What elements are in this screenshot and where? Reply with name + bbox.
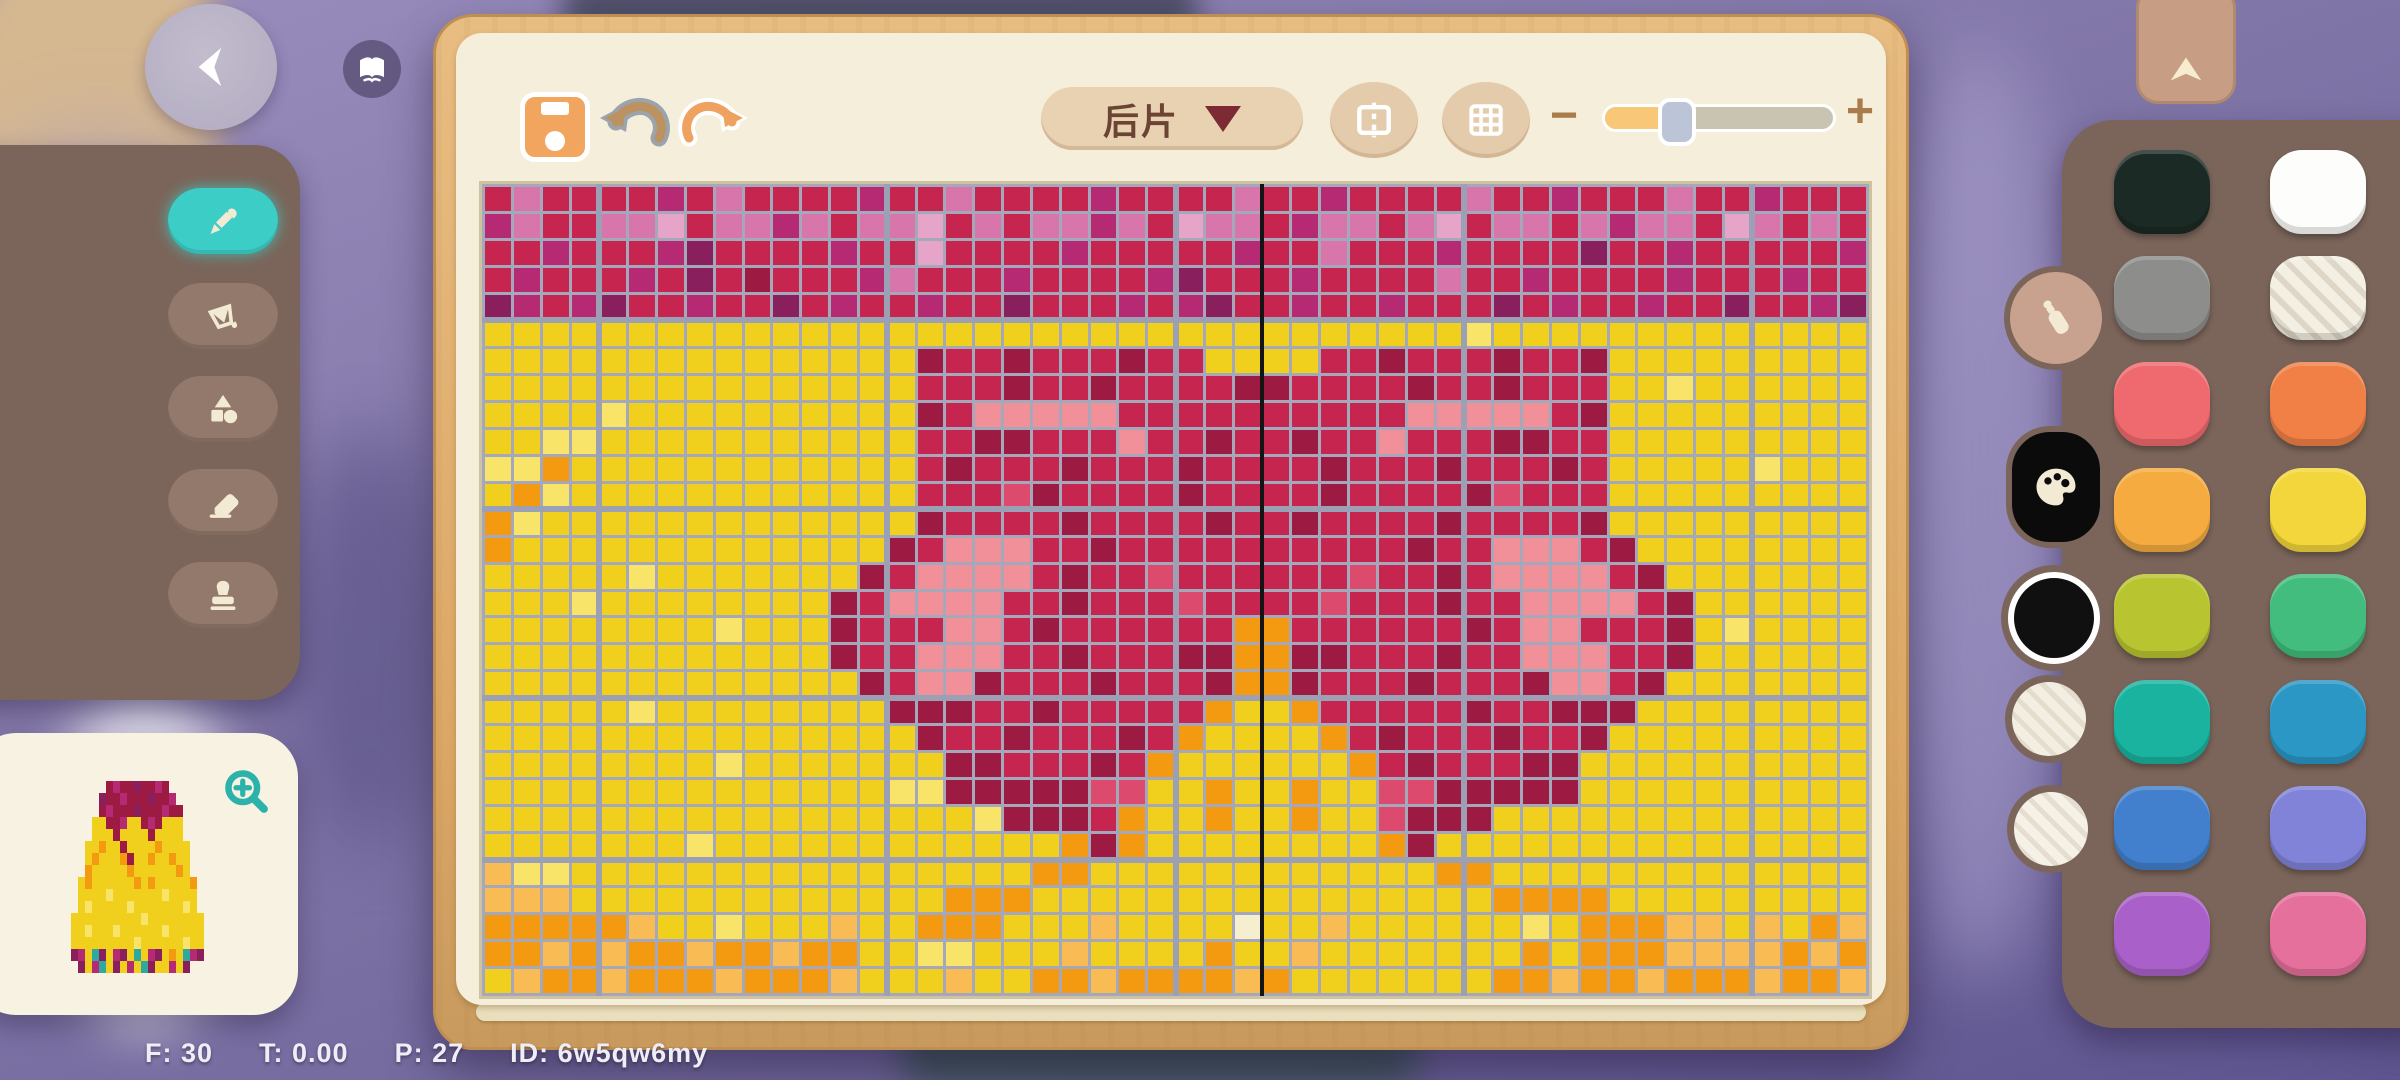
pixel-cell[interactable] [860,457,886,481]
pixel-cell[interactable] [745,187,771,211]
pixel-cell[interactable] [946,807,972,831]
pixel-cell[interactable] [860,969,886,993]
pixel-cell[interactable] [1148,969,1174,993]
pixel-cell[interactable] [1783,511,1809,535]
pixel-cell[interactable] [1667,565,1693,589]
pixel-cell[interactable] [600,430,626,454]
pixel-cell[interactable] [1235,214,1261,238]
pixel-cell[interactable] [745,538,771,562]
pixel-cell[interactable] [1754,942,1780,966]
pixel-cell[interactable] [1321,565,1347,589]
color-swatch-orange[interactable] [2270,362,2366,446]
pixel-cell[interactable] [1292,699,1318,723]
pixel-cell[interactable] [1667,726,1693,750]
pixel-cell[interactable] [687,807,713,831]
pixel-cell[interactable] [1840,322,1866,346]
pixel-cell[interactable] [1379,942,1405,966]
pixel-cell[interactable] [572,834,598,858]
color-swatch-purple[interactable] [2114,892,2210,976]
pixel-cell[interactable] [1783,241,1809,265]
pixel-cell[interactable] [658,942,684,966]
pixel-cell[interactable] [1696,807,1722,831]
pixel-cell[interactable] [1494,780,1520,804]
pixel-cell[interactable] [1408,457,1434,481]
manual-book-button[interactable] [343,40,401,98]
pixel-cell[interactable] [1754,672,1780,696]
pixel-cell[interactable] [1033,942,1059,966]
pixel-cell[interactable] [687,753,713,777]
pixel-cell[interactable] [860,699,886,723]
pixel-cell[interactable] [1667,430,1693,454]
pixel-cell[interactable] [1754,538,1780,562]
pixel-cell[interactable] [1177,780,1203,804]
pixel-cell[interactable] [1408,268,1434,292]
pixel-cell[interactable] [1206,645,1232,669]
pixel-cell[interactable] [1696,753,1722,777]
pixel-cell[interactable] [1552,888,1578,912]
pixel-cell[interactable] [1033,753,1059,777]
pixel-cell[interactable] [1264,349,1290,373]
pixel-cell[interactable] [1350,268,1376,292]
pixel-cell[interactable] [802,538,828,562]
pixel-cell[interactable] [773,214,799,238]
pixel-cell[interactable] [1264,511,1290,535]
pixel-cell[interactable] [1292,214,1318,238]
pixel-cell[interactable] [572,592,598,616]
pixel-cell[interactable] [1754,592,1780,616]
pixel-cell[interactable] [860,322,886,346]
pixel-cell[interactable] [1264,187,1290,211]
pixel-cell[interactable] [1292,969,1318,993]
pixel-cell[interactable] [514,241,540,265]
pixel-cell[interactable] [1408,511,1434,535]
pixel-cell[interactable] [773,915,799,939]
pixel-cell[interactable] [1494,268,1520,292]
pixel-cell[interactable] [946,511,972,535]
pixel-cell[interactable] [1148,699,1174,723]
color-swatch-green[interactable] [2270,574,2366,658]
pixel-cell[interactable] [1062,672,1088,696]
pixel-cell[interactable] [1408,349,1434,373]
pixel-cell[interactable] [1581,322,1607,346]
pixel-cell[interactable] [773,834,799,858]
pixel-cell[interactable] [1581,241,1607,265]
pixel-cell[interactable] [543,511,569,535]
pixel-cell[interactable] [975,349,1001,373]
pixel-cell[interactable] [687,861,713,885]
pixel-cell[interactable] [485,403,511,427]
pixel-cell[interactable] [831,969,857,993]
pixel-canvas[interactable] [482,184,1869,996]
pixel-cell[interactable] [975,726,1001,750]
pixel-cell[interactable] [946,592,972,616]
pixel-cell[interactable] [975,969,1001,993]
pixel-cell[interactable] [1091,780,1117,804]
pixel-cell[interactable] [1321,376,1347,400]
pixel-cell[interactable] [716,861,742,885]
pixel-cell[interactable] [1292,888,1318,912]
pixel-cell[interactable] [773,780,799,804]
pixel-cell[interactable] [1379,376,1405,400]
pixel-cell[interactable] [1465,726,1491,750]
pixel-cell[interactable] [629,511,655,535]
pixel-cell[interactable] [831,268,857,292]
pixel-cell[interactable] [975,403,1001,427]
pixel-cell[interactable] [485,457,511,481]
pixel-cell[interactable] [514,942,540,966]
pixel-cell[interactable] [1235,241,1261,265]
pixel-cell[interactable] [975,618,1001,642]
pixel-cell[interactable] [1177,592,1203,616]
pixel-cell[interactable] [1638,376,1664,400]
pixel-cell[interactable] [658,457,684,481]
pixel-cell[interactable] [1119,780,1145,804]
pixel-cell[interactable] [946,753,972,777]
pixel-cell[interactable] [1667,187,1693,211]
pixel-cell[interactable] [1754,322,1780,346]
pixel-cell[interactable] [1235,645,1261,669]
pixel-cell[interactable] [1783,349,1809,373]
pixel-cell[interactable] [975,322,1001,346]
pixel-cell[interactable] [918,942,944,966]
pixel-cell[interactable] [1610,241,1636,265]
pixel-cell[interactable] [687,699,713,723]
pixel-cell[interactable] [1552,807,1578,831]
pixel-cell[interactable] [1292,403,1318,427]
pixel-cell[interactable] [1062,834,1088,858]
pixel-cell[interactable] [1667,969,1693,993]
pixel-cell[interactable] [860,187,886,211]
pixel-cell[interactable] [1610,753,1636,777]
pixel-cell[interactable] [600,511,626,535]
pixel-cell[interactable] [1264,457,1290,481]
pixel-cell[interactable] [1148,511,1174,535]
pixel-cell[interactable] [745,295,771,319]
pixel-cell[interactable] [1811,565,1837,589]
pixel-cell[interactable] [831,241,857,265]
pixel-cell[interactable] [658,753,684,777]
tool-button-eraser[interactable] [168,469,278,535]
pixel-cell[interactable] [1437,457,1463,481]
pixel-cell[interactable] [1235,888,1261,912]
pixel-cell[interactable] [658,672,684,696]
pixel-cell[interactable] [889,969,915,993]
pixel-cell[interactable] [716,430,742,454]
pixel-cell[interactable] [975,672,1001,696]
pixel-cell[interactable] [514,565,540,589]
pixel-cell[interactable] [1206,861,1232,885]
pixel-cell[interactable] [1783,592,1809,616]
pixel-cell[interactable] [1754,349,1780,373]
pixel-cell[interactable] [600,915,626,939]
pixel-cell[interactable] [1610,780,1636,804]
pixel-cell[interactable] [860,915,886,939]
pixel-cell[interactable] [600,861,626,885]
pixel-cell[interactable] [1321,241,1347,265]
pixel-cell[interactable] [1437,672,1463,696]
pixel-cell[interactable] [1494,565,1520,589]
pixel-cell[interactable] [1754,645,1780,669]
pixel-cell[interactable] [1177,861,1203,885]
pixel-cell[interactable] [1465,645,1491,669]
pixel-cell[interactable] [1610,295,1636,319]
pixel-cell[interactable] [1811,187,1837,211]
pixel-cell[interactable] [1062,214,1088,238]
pixel-cell[interactable] [1177,457,1203,481]
pixel-cell[interactable] [1696,888,1722,912]
pixel-cell[interactable] [1811,969,1837,993]
pixel-cell[interactable] [1206,403,1232,427]
pixel-cell[interactable] [1783,322,1809,346]
pixel-cell[interactable] [1033,376,1059,400]
pixel-cell[interactable] [1437,834,1463,858]
pixel-cell[interactable] [629,214,655,238]
pixel-cell[interactable] [572,511,598,535]
pixel-cell[interactable] [1840,753,1866,777]
pixel-cell[interactable] [1206,484,1232,508]
pixel-cell[interactable] [1292,322,1318,346]
pixel-cell[interactable] [773,592,799,616]
pixel-cell[interactable] [1148,268,1174,292]
pixel-cell[interactable] [1552,457,1578,481]
pixel-cell[interactable] [831,349,857,373]
pixel-cell[interactable] [1004,430,1030,454]
pixel-cell[interactable] [1581,376,1607,400]
pixel-cell[interactable] [1091,618,1117,642]
pixel-cell[interactable] [1437,753,1463,777]
pixel-cell[interactable] [1379,511,1405,535]
pixel-cell[interactable] [1177,834,1203,858]
pixel-cell[interactable] [1321,645,1347,669]
color-swatch-teal[interactable] [2114,680,2210,764]
pixel-cell[interactable] [1783,672,1809,696]
pixel-cell[interactable] [1811,241,1837,265]
pixel-cell[interactable] [946,187,972,211]
pixel-cell[interactable] [629,834,655,858]
pixel-cell[interactable] [1379,403,1405,427]
mirror-symmetry-button[interactable] [1330,82,1418,158]
pixel-cell[interactable] [1581,834,1607,858]
pixel-cell[interactable] [1119,969,1145,993]
pixel-cell[interactable] [946,834,972,858]
pixel-cell[interactable] [831,807,857,831]
pixel-cell[interactable] [687,888,713,912]
pixel-cell[interactable] [918,969,944,993]
pixel-cell[interactable] [1292,592,1318,616]
pixel-cell[interactable] [1206,834,1232,858]
pixel-cell[interactable] [1235,565,1261,589]
pixel-cell[interactable] [1783,538,1809,562]
pixel-cell[interactable] [1437,187,1463,211]
pixel-cell[interactable] [1350,592,1376,616]
pixel-cell[interactable] [1350,430,1376,454]
pixel-cell[interactable] [1523,699,1549,723]
pixel-cell[interactable] [1091,888,1117,912]
pixel-cell[interactable] [1235,457,1261,481]
pixel-cell[interactable] [485,268,511,292]
pixel-cell[interactable] [1754,699,1780,723]
grid-toggle-button[interactable] [1442,82,1530,158]
pixel-cell[interactable] [543,403,569,427]
pixel-cell[interactable] [1638,834,1664,858]
pixel-cell[interactable] [1148,322,1174,346]
pixel-cell[interactable] [1725,214,1751,238]
pixel-cell[interactable] [543,699,569,723]
pixel-cell[interactable] [1581,214,1607,238]
pixel-cell[interactable] [802,861,828,885]
pixel-cell[interactable] [716,322,742,346]
pixel-cell[interactable] [1754,807,1780,831]
pixel-cell[interactable] [1292,565,1318,589]
pixel-cell[interactable] [831,834,857,858]
pixel-cell[interactable] [1206,430,1232,454]
pixel-cell[interactable] [1811,888,1837,912]
pixel-cell[interactable] [745,565,771,589]
pixel-cell[interactable] [975,699,1001,723]
pixel-cell[interactable] [1811,807,1837,831]
pixel-cell[interactable] [1783,618,1809,642]
zoom-preview-button[interactable] [220,765,272,817]
pixel-cell[interactable] [773,753,799,777]
pixel-cell[interactable] [1754,187,1780,211]
pixel-cell[interactable] [1292,430,1318,454]
pixel-cell[interactable] [572,403,598,427]
pixel-cell[interactable] [975,942,1001,966]
pixel-cell[interactable] [658,834,684,858]
pixel-cell[interactable] [687,241,713,265]
pixel-cell[interactable] [1840,565,1866,589]
pixel-cell[interactable] [1437,295,1463,319]
pixel-cell[interactable] [1610,430,1636,454]
pixel-cell[interactable] [572,268,598,292]
pixel-cell[interactable] [1610,592,1636,616]
pixel-cell[interactable] [1062,349,1088,373]
pixel-cell[interactable] [918,295,944,319]
pixel-cell[interactable] [1206,807,1232,831]
pixel-cell[interactable] [514,780,540,804]
pixel-cell[interactable] [1437,618,1463,642]
pixel-cell[interactable] [860,349,886,373]
pixel-cell[interactable] [745,511,771,535]
pixel-cell[interactable] [1840,672,1866,696]
pixel-cell[interactable] [1638,322,1664,346]
pixel-cell[interactable] [629,699,655,723]
pixel-cell[interactable] [975,187,1001,211]
pixel-cell[interactable] [1292,349,1318,373]
pixel-cell[interactable] [860,430,886,454]
pixel-cell[interactable] [1465,915,1491,939]
pixel-cell[interactable] [1523,672,1549,696]
pixel-cell[interactable] [1119,511,1145,535]
pixel-cell[interactable] [1494,376,1520,400]
pixel-cell[interactable] [1523,484,1549,508]
pixel-cell[interactable] [918,861,944,885]
pixel-cell[interactable] [1725,538,1751,562]
pixel-cell[interactable] [946,457,972,481]
pixel-cell[interactable] [1754,511,1780,535]
pixel-cell[interactable] [1148,834,1174,858]
pixel-cell[interactable] [629,915,655,939]
pixel-cell[interactable] [773,888,799,912]
pixel-cell[interactable] [514,403,540,427]
pixel-cell[interactable] [543,942,569,966]
pixel-cell[interactable] [802,295,828,319]
pixel-cell[interactable] [1754,726,1780,750]
pixel-cell[interactable] [514,726,540,750]
pixel-cell[interactable] [1465,672,1491,696]
pixel-cell[interactable] [687,322,713,346]
pixel-cell[interactable] [1264,295,1290,319]
pixel-cell[interactable] [1292,618,1318,642]
pixel-cell[interactable] [600,538,626,562]
pixel-cell[interactable] [1783,484,1809,508]
pixel-cell[interactable] [1004,861,1030,885]
pixel-cell[interactable] [1754,861,1780,885]
pixel-cell[interactable] [1033,672,1059,696]
pixel-cell[interactable] [1783,807,1809,831]
pixel-cell[interactable] [1206,268,1232,292]
pixel-cell[interactable] [1840,834,1866,858]
pixel-cell[interactable] [745,807,771,831]
pixel-cell[interactable] [1321,214,1347,238]
pixel-cell[interactable] [1754,214,1780,238]
pixel-cell[interactable] [1177,753,1203,777]
pixel-cell[interactable] [773,403,799,427]
pixel-cell[interactable] [543,484,569,508]
pixel-cell[interactable] [1638,753,1664,777]
pixel-cell[interactable] [1379,268,1405,292]
pixel-cell[interactable] [918,268,944,292]
pixel-cell[interactable] [1523,645,1549,669]
pixel-cell[interactable] [975,565,1001,589]
pixel-cell[interactable] [514,214,540,238]
pixel-cell[interactable] [1091,538,1117,562]
pixel-cell[interactable] [1667,672,1693,696]
pixel-cell[interactable] [629,672,655,696]
pixel-cell[interactable] [543,969,569,993]
pixel-cell[interactable] [1667,645,1693,669]
pixel-cell[interactable] [1292,942,1318,966]
pixel-cell[interactable] [1610,214,1636,238]
pixel-cell[interactable] [1235,969,1261,993]
current-color-indicator[interactable] [2008,572,2100,664]
pixel-cell[interactable] [1783,565,1809,589]
pixel-cell[interactable] [658,295,684,319]
pixel-cell[interactable] [1033,726,1059,750]
pixel-cell[interactable] [687,430,713,454]
pixel-cell[interactable] [1004,618,1030,642]
pixel-cell[interactable] [1379,834,1405,858]
pixel-cell[interactable] [745,484,771,508]
pixel-cell[interactable] [831,645,857,669]
pixel-cell[interactable] [1523,376,1549,400]
pixel-cell[interactable] [1379,861,1405,885]
pixel-cell[interactable] [1840,699,1866,723]
pixel-cell[interactable] [1292,376,1318,400]
pixel-cell[interactable] [1581,349,1607,373]
pixel-cell[interactable] [1004,187,1030,211]
pixel-cell[interactable] [716,969,742,993]
pixel-cell[interactable] [1350,672,1376,696]
pixel-cell[interactable] [1321,511,1347,535]
pixel-cell[interactable] [485,753,511,777]
pixel-cell[interactable] [1552,430,1578,454]
pixel-cell[interactable] [1177,187,1203,211]
piece-selector-dropdown[interactable]: 后片 [1041,87,1303,150]
pixel-cell[interactable] [1119,942,1145,966]
pixel-cell[interactable] [1610,511,1636,535]
pixel-cell[interactable] [831,592,857,616]
